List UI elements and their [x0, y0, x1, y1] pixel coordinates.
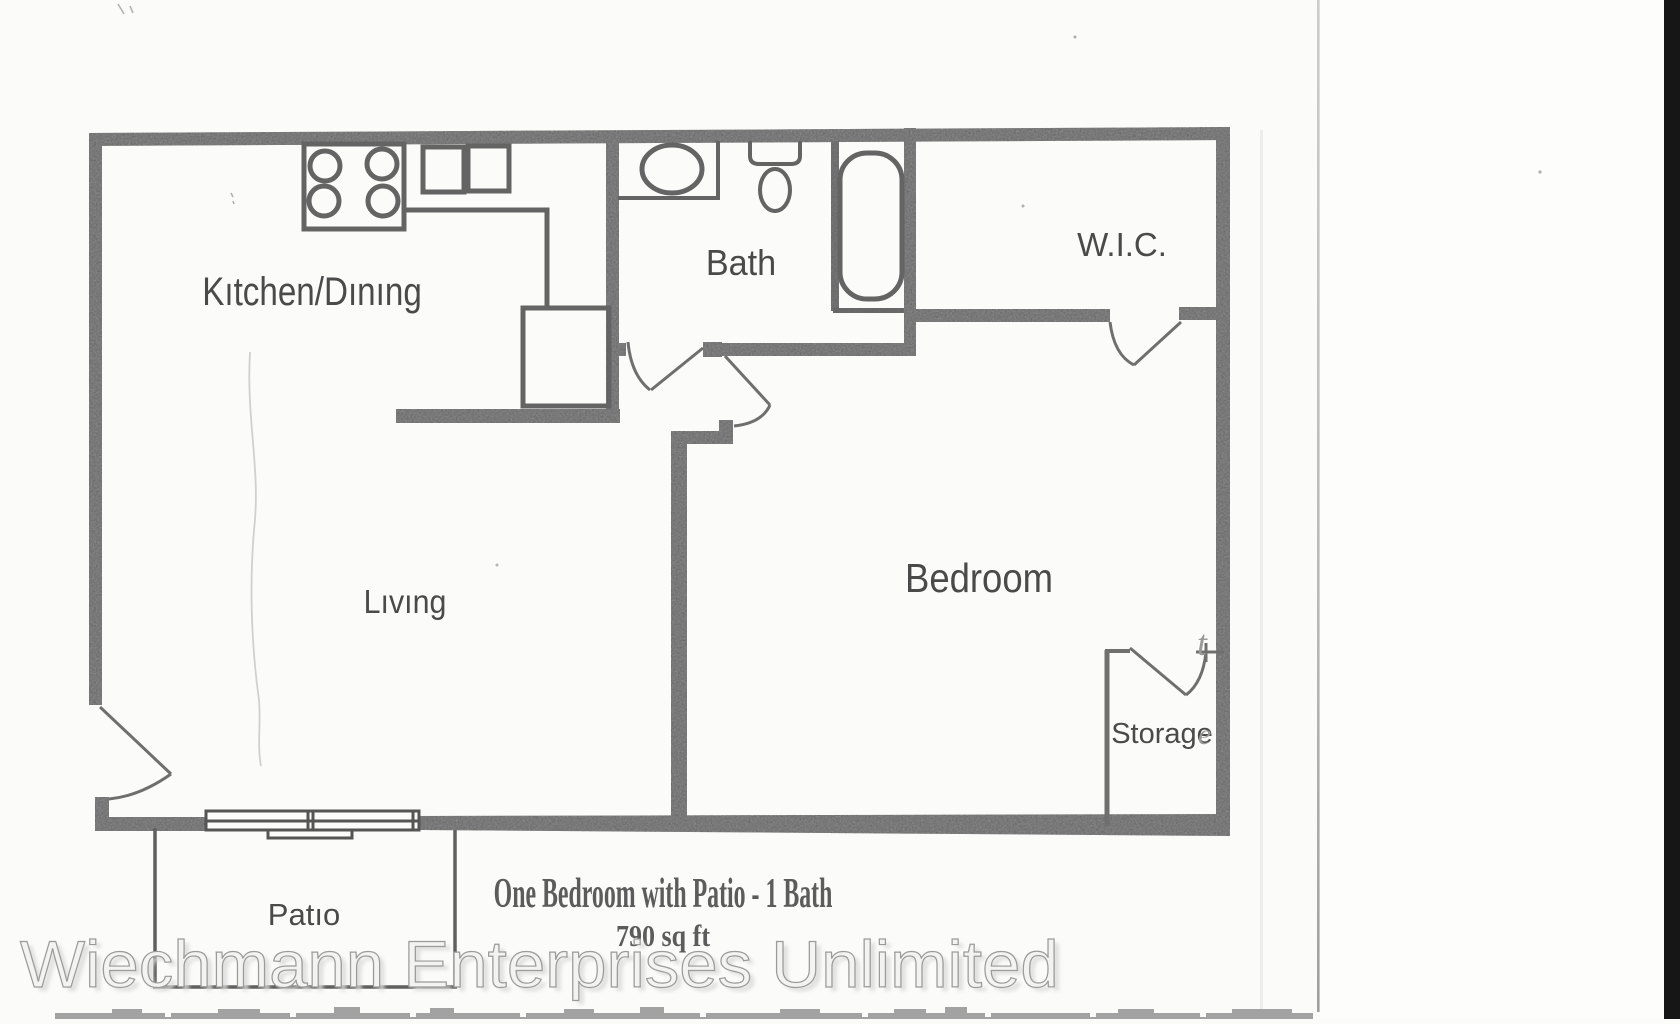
svg-text:e: e — [1198, 718, 1211, 751]
svg-text:Wiechmann Enterprises Unlimite: Wiechmann Enterprises Unlimited — [20, 928, 1059, 1001]
svg-text:One Bedroom with Patio - 1 Bat: One Bedroom with Patio - 1 Bath — [494, 871, 833, 916]
svg-text:W.I.C.: W.I.C. — [1077, 226, 1167, 263]
svg-text:Bath: Bath — [706, 243, 776, 283]
svg-text:Patıo: Patıo — [268, 897, 340, 932]
svg-text:Kıtchen/Dınıng: Kıtchen/Dınıng — [202, 269, 422, 314]
svg-text:t: t — [1197, 623, 1208, 663]
svg-text:Bedroom: Bedroom — [905, 556, 1053, 601]
svg-text:Lıvıng: Lıvıng — [364, 583, 447, 620]
